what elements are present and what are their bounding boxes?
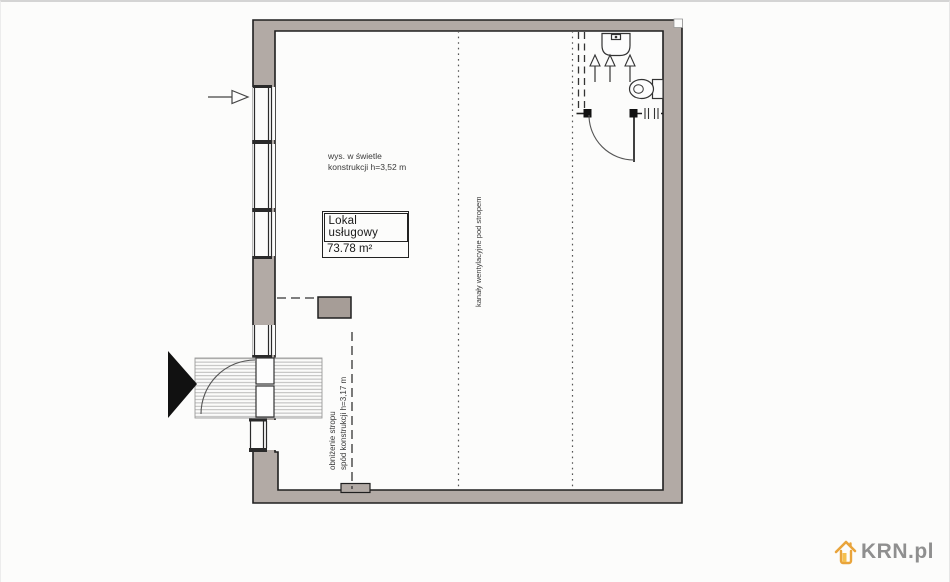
ceiling-drop-line2: spód konstrukcji h=3,17 m: [338, 377, 349, 470]
clear-height-line2: konstrukcji h=3,52 m: [328, 162, 406, 173]
sink-icon: [602, 34, 630, 56]
house-icon: [833, 538, 858, 565]
floor-plan-page: wys. w świetle konstrukcji h=3,52 m Loka…: [0, 0, 950, 582]
wc-area: [577, 32, 664, 162]
up-arrow-icon: [605, 55, 615, 82]
toilet-icon: [630, 80, 664, 99]
entrance-door-leaf: [256, 358, 274, 384]
ceiling-drop-label: obniżenie stropu spód konstrukcji h=3,17…: [327, 377, 349, 470]
clear-height-note: wys. w świetle konstrukcji h=3,52 m: [328, 151, 406, 172]
up-arrow-icon: [590, 55, 600, 82]
room-area: 73.78 m²: [323, 242, 408, 257]
entrance-door-leaf: [256, 386, 274, 417]
wc-door-arc: [589, 115, 634, 160]
room-label-box: Lokal usługowy 73.78 m²: [322, 211, 409, 258]
up-arrow-icons: [590, 55, 635, 82]
right-arrow-icon: [208, 91, 248, 104]
wall-shell: [253, 19, 683, 503]
wall-break-marks: [645, 108, 658, 119]
column: [318, 297, 351, 318]
krn-watermark: KRN.pl: [833, 538, 934, 565]
ceiling-drop-line1: obniżenie stropu: [327, 377, 338, 470]
window: [253, 212, 276, 259]
clear-height-line1: wys. w świetle: [328, 151, 406, 162]
window: [253, 85, 276, 144]
entry-triangle-icon: [168, 351, 197, 418]
window: [248, 418, 276, 452]
window: [253, 325, 276, 359]
entrance: [168, 351, 322, 419]
up-arrow-icon: [625, 55, 635, 82]
vent-duct-label: kanały wentylacyjne pod stropem: [473, 197, 484, 307]
room-name: Lokal usługowy: [324, 213, 408, 242]
window: [253, 144, 276, 212]
krn-brand-text: KRN.pl: [861, 540, 934, 564]
wall-notch: [674, 19, 683, 28]
bottom-pilaster: [341, 484, 370, 493]
